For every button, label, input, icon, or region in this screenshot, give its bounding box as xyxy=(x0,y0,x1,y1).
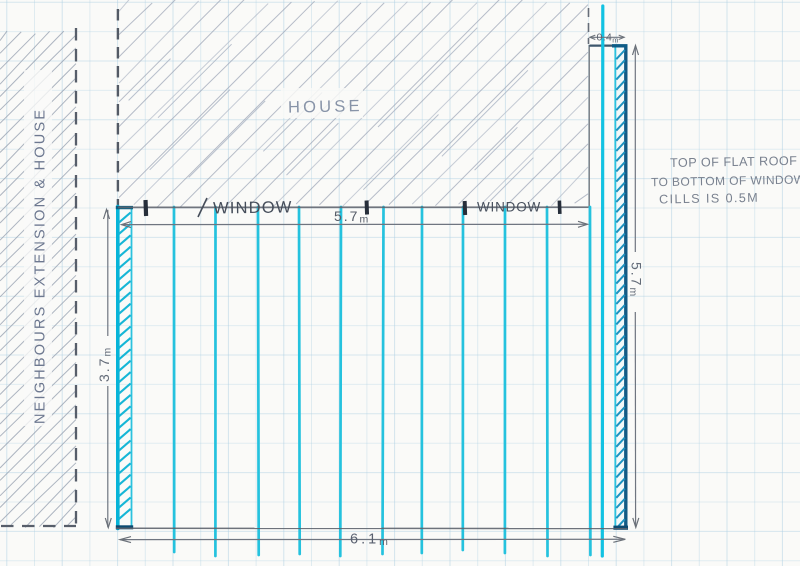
svg-text:WINDOW: WINDOW xyxy=(213,198,293,217)
svg-text:CILLS IS 0.5M: CILLS IS 0.5M xyxy=(659,191,759,207)
svg-text:TO BOTTOM OF WINDOW: TO BOTTOM OF WINDOW xyxy=(651,173,800,190)
svg-text:WINDOW: WINDOW xyxy=(477,200,541,215)
svg-text:HOUSE: HOUSE xyxy=(288,97,363,117)
svg-text:NEIGHBOURS EXTENSION & HOUSE: NEIGHBOURS EXTENSION & HOUSE xyxy=(33,108,49,424)
svg-text:TOP OF FLAT ROOF: TOP OF FLAT ROOF xyxy=(670,154,798,170)
